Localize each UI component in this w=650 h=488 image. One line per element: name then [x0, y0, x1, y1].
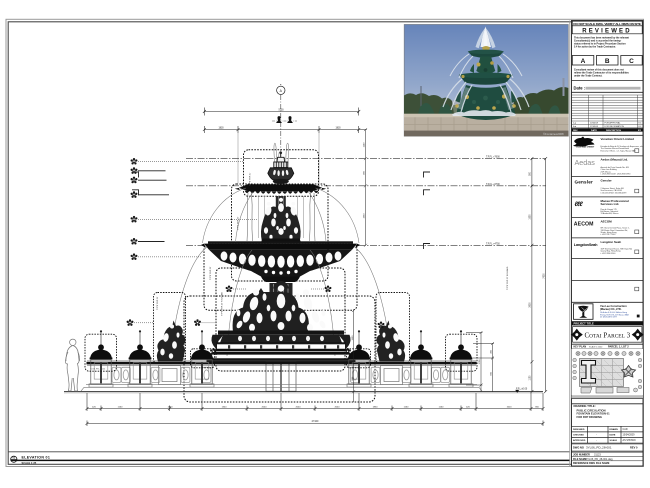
svg-text:PARCEL 1, LOT 2: PARCEL 1, LOT 2	[608, 346, 629, 349]
svg-text:B: B	[605, 58, 610, 65]
svg-text:AECOM: AECOM	[574, 222, 594, 228]
svg-text:TYPE 'FRP-03': TYPE 'FRP-03'	[238, 216, 240, 230]
svg-text:ℓℓℓ: ℓℓℓ	[575, 201, 583, 208]
svg-text:DRAWING TITLE:: DRAWING TITLE:	[574, 404, 596, 408]
svg-text:DESIGNED: DESIGNED	[573, 429, 585, 431]
svg-text:FOR INFORMATION: FOR INFORMATION	[605, 125, 625, 128]
svg-text:13 Andar A-B, Macau: 13 Andar A-B, Macau	[601, 212, 619, 215]
svg-text:t +852 2830 3500: t +852 2830 3500	[601, 252, 616, 255]
svg-text:1950: 1950	[364, 213, 366, 219]
svg-text:1950: 1950	[530, 214, 532, 220]
svg-text:T.F.F.L +6700: T.F.F.L +6700	[486, 184, 500, 186]
svg-text:1160: 1160	[404, 406, 409, 408]
svg-text:CAD: CAD	[623, 428, 628, 431]
svg-text:Executive Offices - L2, Taipa,: Executive Offices - L2, Taipa, Macao SAR	[601, 149, 637, 152]
svg-text:t +852 2317 7000: t +852 2317 7000	[601, 233, 616, 236]
svg-text:Aedas: Aedas	[575, 158, 596, 167]
svg-text:360: 360	[535, 406, 539, 408]
svg-text:tel: (853) 2875 0877: tel: (853) 2875 0877	[600, 316, 617, 319]
svg-text:420: 420	[92, 406, 96, 408]
svg-text:ELEVATION 01: ELEVATION 01	[22, 456, 51, 460]
svg-text:DESCRIPTION: DESCRIPTION	[606, 130, 621, 132]
svg-text:C: C	[629, 58, 634, 65]
svg-text:1620: 1620	[507, 406, 513, 408]
svg-text:5.4 for action by the Trade Co: 5.4 for action by the Trade Contractor.	[574, 46, 616, 49]
svg-text:1860: 1860	[168, 406, 174, 408]
svg-text:SCALE: SCALE	[610, 439, 618, 442]
svg-text:Venetian Orient Limited: Venetian Orient Limited	[601, 137, 635, 141]
svg-text:1▲: 1▲	[573, 122, 576, 125]
svg-text:KC: KC	[639, 126, 642, 128]
svg-text:27440: 27440	[312, 420, 319, 423]
svg-text:Date :: Date :	[574, 86, 586, 91]
svg-text:DO NOT SCALE DWG. VERIFY ALL D: DO NOT SCALE DWG. VERIFY ALL DIMS ON SIT…	[573, 22, 641, 26]
svg-text:1150: 1150	[530, 375, 532, 381]
svg-text:©Fontaines2008: ©Fontaines2008	[543, 132, 564, 136]
svg-text:2040: 2040	[262, 406, 268, 408]
svg-text:2040: 2040	[296, 406, 302, 408]
svg-text:KC: KC	[639, 123, 642, 125]
svg-text:LangdonSeah: LangdonSeah	[574, 242, 598, 247]
svg-text:under the Trade Contract.: under the Trade Contract.	[574, 75, 603, 78]
svg-text:3YL06_PD_28-001: 3YL06_PD_28-001	[586, 446, 612, 450]
svg-text:BY: BY	[638, 130, 642, 132]
svg-text:2040: 2040	[335, 406, 341, 408]
svg-text:3600: 3600	[530, 302, 532, 308]
svg-text:TYPE 'FRP-01': TYPE 'FRP-01'	[250, 172, 252, 186]
svg-text:This document has been reviewe: This document has been reviewed by the r…	[574, 37, 629, 40]
svg-text:1340: 1340	[222, 406, 228, 408]
svg-text:COTAI PARCEL 3: COTAI PARCEL 3	[584, 331, 630, 339]
svg-text:REV 0: REV 0	[630, 446, 638, 450]
svg-text:17/03/09: 17/03/09	[590, 126, 599, 128]
svg-text:DWG NO: DWG NO	[573, 446, 584, 450]
svg-text:420: 420	[466, 406, 470, 408]
svg-text:FILE NAME: FILE NAME	[573, 458, 587, 461]
svg-text:10/04/09: 10/04/09	[590, 123, 599, 125]
svg-text:7600: 7600	[543, 273, 545, 279]
svg-text:01: 01	[12, 455, 15, 459]
svg-text:3YL06_PD_28-001.dwg: 3YL06_PD_28-001.dwg	[586, 458, 613, 461]
svg-text:5750: 5750	[278, 109, 284, 111]
svg-text:1150: 1150	[352, 335, 354, 340]
svg-text:t +853 2833 1113 f +853 283: t +853 2833 1113 f +853 2833 1990	[601, 173, 631, 176]
svg-text:TYPE 'FRP-06': TYPE 'FRP-06'	[157, 296, 159, 310]
svg-text:FOR APPROVAL: FOR APPROVAL	[605, 122, 622, 125]
svg-text:T.F.F.L +7600: T.F.F.L +7600	[486, 157, 500, 159]
svg-text:1830: 1830	[335, 127, 341, 129]
svg-text:1160: 1160	[439, 406, 444, 408]
svg-text:DATE: DATE	[610, 433, 616, 436]
svg-text:Consultant review of this docu: Consultant review of this document does …	[574, 69, 624, 72]
svg-text:APPROVED: APPROVED	[573, 439, 586, 442]
svg-text:10/04/2009: 10/04/2009	[623, 434, 636, 437]
svg-text:TYPE 'FRP-04' FOUNTAIN: TYPE 'FRP-04' FOUNTAIN	[221, 291, 224, 316]
svg-text:A: A	[280, 89, 283, 93]
svg-text:VENETIAN ORIENT: VENETIAN ORIENT	[576, 146, 595, 149]
svg-text:CHECKED: CHECKED	[573, 434, 584, 436]
svg-text:1140: 1140	[364, 142, 366, 147]
svg-text:relieve the Trade Contracto: relieve the Trade Contractor of its resp…	[574, 72, 630, 75]
svg-text:T.O.W. F.F.L +1150: T.O.W. F.F.L +1150	[90, 369, 105, 371]
svg-text:0▲: 0▲	[573, 125, 576, 128]
svg-text:1860: 1860	[373, 406, 379, 408]
svg-text:FOR FRP DRAWING: FOR FRP DRAWING	[577, 415, 602, 419]
svg-text:status referred to in Project: status referred to in Project Procedure …	[574, 43, 626, 46]
svg-text:SCALE 1:25: SCALE 1:25	[22, 461, 37, 465]
svg-text:SCALE 1:2500: SCALE 1:2500	[589, 346, 603, 349]
svg-text:900: 900	[530, 171, 532, 176]
svg-text:DRAWN: DRAWN	[610, 428, 619, 431]
svg-text:T.F.F.L +4750: T.F.F.L +4750	[486, 243, 500, 245]
svg-text:TYPE 'FRP-02': TYPE 'FRP-02'	[210, 266, 212, 280]
svg-text:1830: 1830	[218, 127, 224, 129]
svg-text:Gensler: Gensler	[575, 180, 594, 185]
svg-text:Langdon Seah: Langdon Seah	[601, 240, 622, 244]
svg-text:Consultants(s) and is accorded: Consultants(s) and is accorded the timin…	[574, 40, 621, 43]
svg-text:REV.: REV.	[573, 130, 578, 132]
svg-text:Aedas (Macau) Ltd.: Aedas (Macau) Ltd.	[601, 157, 629, 161]
svg-text:AS SHOWN: AS SHOWN	[623, 439, 636, 442]
svg-text:PROJECT TITLE: PROJECT TITLE	[574, 322, 594, 326]
svg-text:AECOM: AECOM	[601, 219, 613, 223]
svg-text:DATE: DATE	[591, 129, 597, 132]
svg-text:REVIEWED: REVIEWED	[582, 29, 632, 35]
svg-text:Services Ltd.: Services Ltd.	[601, 202, 620, 206]
svg-text:REFERENCE DWG FILE NAME: REFERENCE DWG FILE NAME	[573, 462, 610, 465]
svg-text:1160: 1160	[118, 406, 123, 408]
svg-text:Gensler: Gensler	[601, 178, 613, 182]
svg-text:KEY PLAN: KEY PLAN	[574, 346, 587, 349]
svg-text:A: A	[581, 58, 586, 65]
svg-text:31123: 31123	[594, 453, 601, 456]
svg-text:TYPE 'FRP-05' BOLLARD: TYPE 'FRP-05' BOLLARD	[506, 266, 509, 290]
svg-text:t 415.433.3700 f 415.836.4599: t 415.433.3700 f 415.836.4599	[601, 191, 627, 194]
svg-text:(Macau) CO.,LTD.: (Macau) CO.,LTD.	[600, 307, 622, 311]
svg-text:JOB NUMBER: JOB NUMBER	[573, 453, 590, 456]
